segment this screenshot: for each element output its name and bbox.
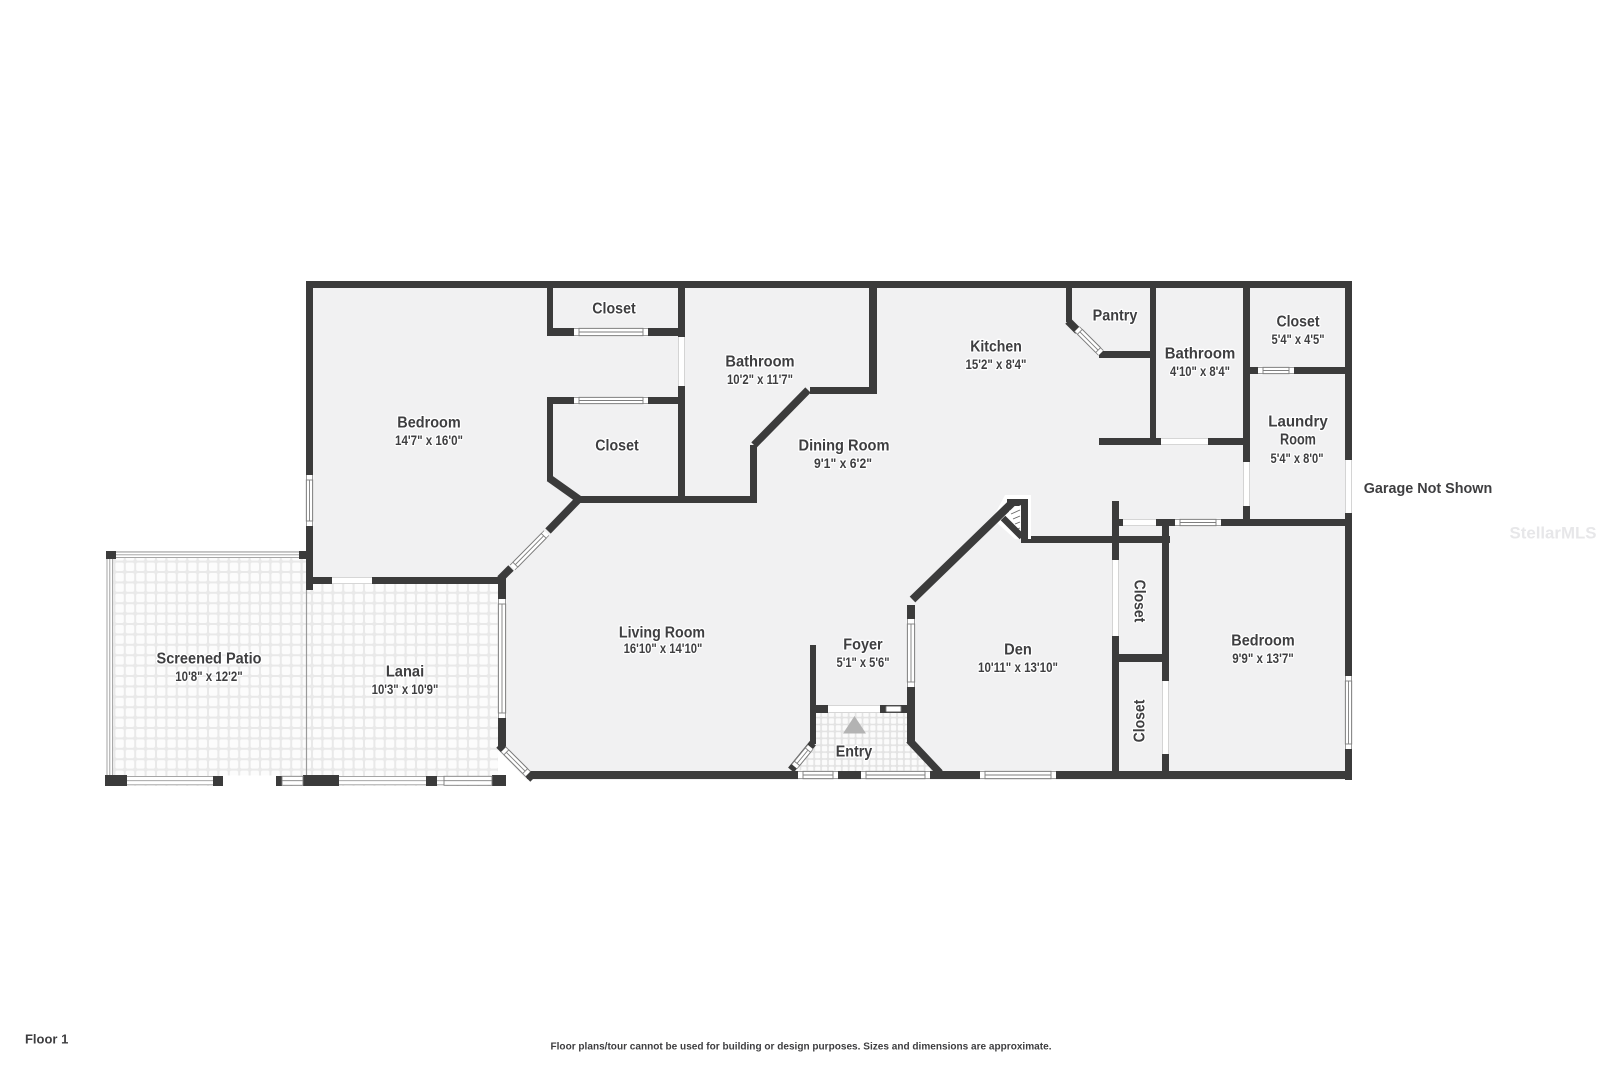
- svg-text:StellarMLS: StellarMLS: [1510, 524, 1597, 543]
- svg-text:Floor plans/tour cannot be use: Floor plans/tour cannot be used for buil…: [551, 1042, 1052, 1053]
- svg-text:Lanai: Lanai: [386, 664, 424, 681]
- svg-text:Bedroom: Bedroom: [1231, 633, 1294, 650]
- svg-text:Closet: Closet: [595, 438, 639, 455]
- svg-text:Floor 1: Floor 1: [25, 1032, 68, 1047]
- svg-text:5'4" x 8'0": 5'4" x 8'0": [1271, 450, 1324, 466]
- svg-text:10'11" x 13'10": 10'11" x 13'10": [978, 659, 1058, 675]
- svg-text:5'1" x 5'6": 5'1" x 5'6": [837, 654, 890, 670]
- svg-text:Room: Room: [1280, 432, 1316, 449]
- svg-text:16'10" x 14'10": 16'10" x 14'10": [624, 640, 703, 656]
- svg-text:10'8" x 12'2": 10'8" x 12'2": [175, 668, 242, 684]
- svg-text:9'9" x 13'7": 9'9" x 13'7": [1232, 650, 1294, 666]
- svg-text:Closet: Closet: [1276, 314, 1320, 331]
- svg-text:Foyer: Foyer: [843, 637, 882, 654]
- svg-text:Closet: Closet: [592, 301, 636, 318]
- svg-text:Kitchen: Kitchen: [970, 339, 1022, 356]
- svg-text:Screened Patio: Screened Patio: [157, 651, 262, 668]
- svg-text:Closet: Closet: [1131, 580, 1148, 623]
- svg-text:15'2" x 8'4": 15'2" x 8'4": [966, 356, 1027, 372]
- svg-text:9'1" x 6'2": 9'1" x 6'2": [814, 455, 872, 471]
- svg-text:14'7" x 16'0": 14'7" x 16'0": [395, 432, 463, 448]
- svg-text:10'2" x 11'7": 10'2" x 11'7": [727, 371, 793, 387]
- svg-text:10'3" x 10'9": 10'3" x 10'9": [372, 681, 439, 697]
- svg-text:Living Room: Living Room: [619, 625, 705, 642]
- svg-text:Bathroom: Bathroom: [725, 354, 794, 371]
- svg-text:4'10" x 8'4": 4'10" x 8'4": [1170, 363, 1230, 379]
- svg-text:Entry: Entry: [836, 744, 873, 761]
- svg-text:Laundry: Laundry: [1268, 414, 1328, 431]
- svg-text:5'4" x 4'5": 5'4" x 4'5": [1272, 331, 1325, 347]
- svg-text:Garage Not Shown: Garage Not Shown: [1364, 481, 1493, 497]
- svg-text:Den: Den: [1004, 642, 1032, 659]
- svg-text:Closet: Closet: [1132, 699, 1149, 742]
- svg-text:Bedroom: Bedroom: [397, 415, 460, 432]
- svg-text:Bathroom: Bathroom: [1165, 346, 1236, 363]
- svg-text:Pantry: Pantry: [1093, 308, 1138, 325]
- svg-text:Dining Room: Dining Room: [799, 438, 890, 455]
